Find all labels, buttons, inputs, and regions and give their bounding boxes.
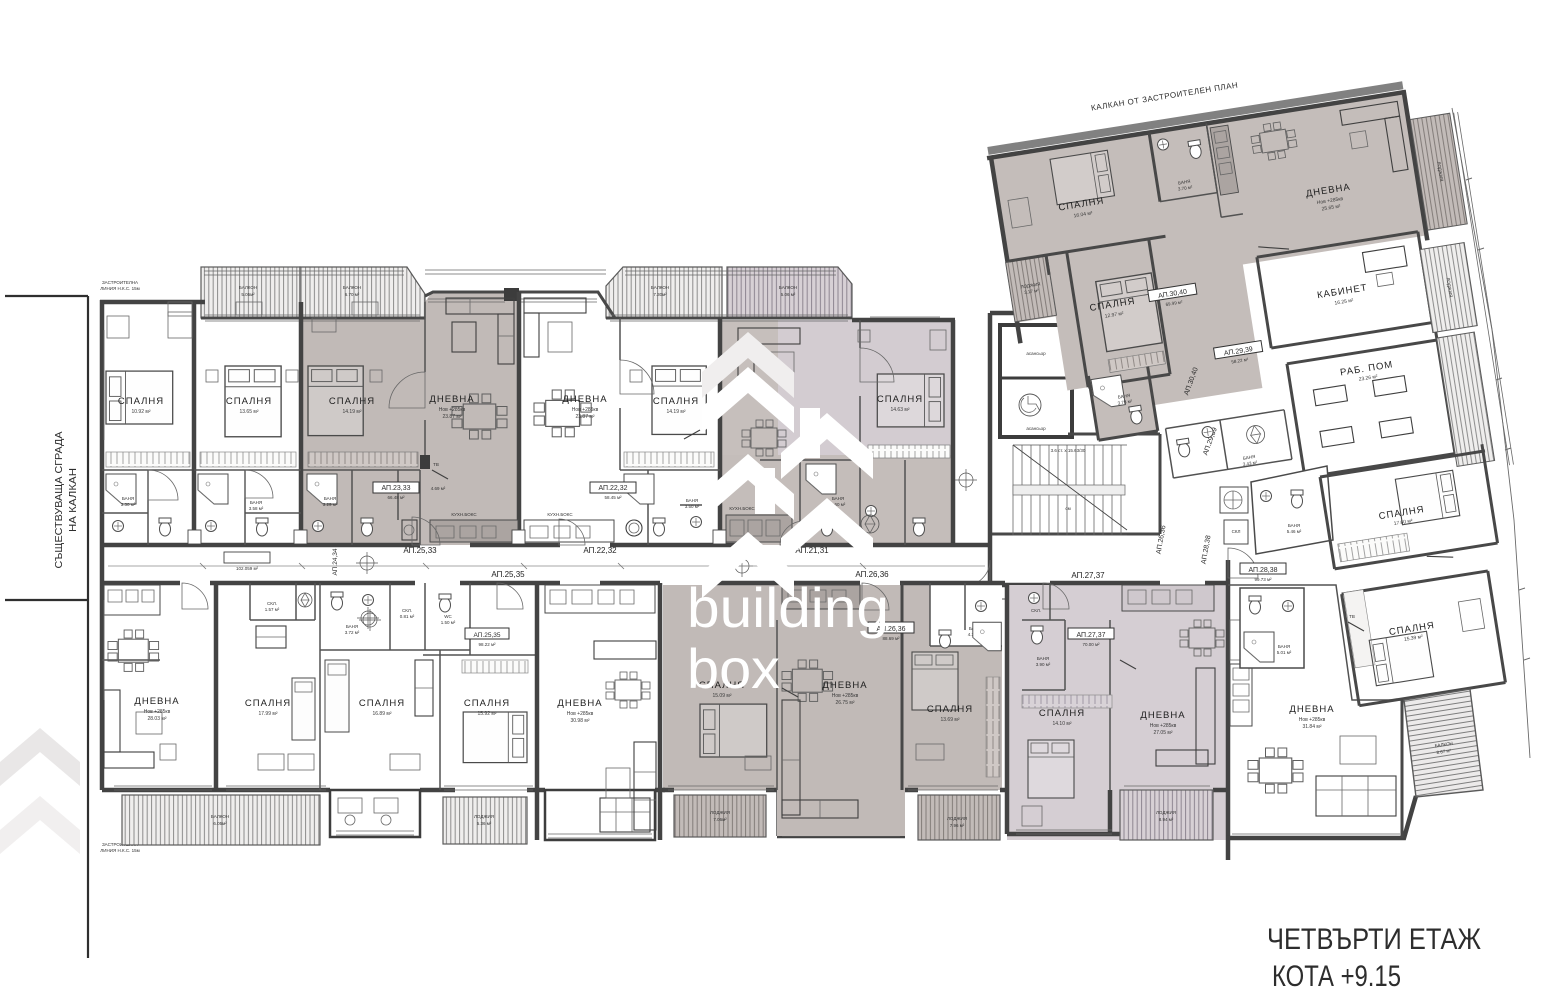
svg-text:СПАЛНЯ: СПАЛНЯ xyxy=(653,396,699,407)
svg-text:1.57 м²: 1.57 м² xyxy=(265,607,280,612)
svg-text:3.90 м²: 3.90 м² xyxy=(1036,662,1051,667)
svg-text:асансьор: асансьор xyxy=(1026,426,1046,431)
svg-text:7.96 м²: 7.96 м² xyxy=(950,823,965,828)
svg-text:Нов +285кв: Нов +285кв xyxy=(567,711,594,717)
svg-text:АП.22,32: АП.22,32 xyxy=(598,485,627,492)
svg-text:1.50 м²: 1.50 м² xyxy=(441,620,456,625)
svg-text:Нов +285кв: Нов +285кв xyxy=(144,709,171,715)
svg-text:АП.25,35: АП.25,35 xyxy=(491,570,525,579)
svg-text:58.45 м²: 58.45 м² xyxy=(604,495,622,500)
svg-text:БАНЯ: БАНЯ xyxy=(324,496,336,501)
svg-text:13.69 м²: 13.69 м² xyxy=(940,717,959,723)
svg-text:СПАЛНЯ: СПАЛНЯ xyxy=(464,698,510,709)
svg-text:БАНЯ: БАНЯ xyxy=(1278,644,1290,649)
svg-text:СЪЩЕСТВУВАЩА СГРАДА: СЪЩЕСТВУВАЩА СГРАДА xyxy=(53,432,65,569)
svg-text:СКЛ: СКЛ xyxy=(1232,529,1241,534)
svg-text:30.98 м²: 30.98 м² xyxy=(570,718,589,724)
svg-text:БАЛКОН: БАЛКОН xyxy=(343,285,361,290)
svg-text:6.70 м²: 6.70 м² xyxy=(345,292,360,297)
svg-text:ЛИНИЯ Н.К.С. 15м: ЛИНИЯ Н.К.С. 15м xyxy=(100,848,139,853)
svg-text:3.30 м²: 3.30 м² xyxy=(121,502,136,507)
svg-text:БАЛКОН: БАЛКОН xyxy=(239,285,257,290)
svg-text:ДНЕВНА: ДНЕВНА xyxy=(1140,710,1185,721)
svg-text:14.19 м²: 14.19 м² xyxy=(342,409,361,415)
svg-text:БАНЯ: БАНЯ xyxy=(686,498,698,503)
svg-text:ТВ: ТВ xyxy=(1349,614,1355,619)
svg-text:5.06 м²: 5.06 м² xyxy=(781,292,796,297)
svg-text:БАНЯ: БАНЯ xyxy=(832,496,844,501)
svg-text:99.73 м²: 99.73 м² xyxy=(1254,577,1272,582)
svg-text:СПАЛНЯ: СПАЛНЯ xyxy=(359,698,405,709)
svg-text:БАНЯ: БАНЯ xyxy=(346,624,358,629)
svg-text:3.29 м²: 3.29 м² xyxy=(323,502,338,507)
svg-text:3.6 ст. х 15.63/30: 3.6 ст. х 15.63/30 xyxy=(1051,448,1086,453)
svg-text:СПАЛНЯ: СПАЛНЯ xyxy=(1039,708,1085,719)
svg-text:3.72 м²: 3.72 м² xyxy=(345,630,360,635)
svg-text:АП.23,33: АП.23,33 xyxy=(381,485,410,492)
svg-text:АП.25,35: АП.25,35 xyxy=(473,632,500,639)
svg-text:102.059 м²: 102.059 м² xyxy=(236,566,259,571)
svg-text:building: building xyxy=(687,576,889,639)
svg-text:СПАЛНЯ: СПАЛНЯ xyxy=(877,394,923,405)
svg-text:5.05м²: 5.05м² xyxy=(241,292,255,297)
svg-text:box: box xyxy=(687,637,780,700)
svg-text:БАНЯ: БАНЯ xyxy=(250,500,262,505)
svg-text:0.81 м²: 0.81 м² xyxy=(400,614,415,619)
svg-text:БАЛКОН: БАЛКОН xyxy=(211,814,229,819)
svg-text:СПАЛНЯ: СПАЛНЯ xyxy=(118,396,164,407)
svg-text:70.00 м²: 70.00 м² xyxy=(1082,642,1100,647)
svg-text:ДНЕВНА: ДНЕВНА xyxy=(822,680,867,691)
svg-text:ТВ: ТВ xyxy=(433,462,439,467)
svg-text:СКЛ.: СКЛ. xyxy=(402,608,412,613)
svg-text:5.46 м²: 5.46 м² xyxy=(1287,529,1302,534)
svg-text:НА КАЛКАН: НА КАЛКАН xyxy=(67,468,79,532)
svg-text:4.69 м²: 4.69 м² xyxy=(431,486,446,491)
svg-text:10.92 м²: 10.92 м² xyxy=(131,409,150,415)
svg-text:АП.25,33: АП.25,33 xyxy=(403,546,437,555)
svg-text:см: см xyxy=(1065,506,1070,511)
svg-text:ДНЕВНА: ДНЕВНА xyxy=(557,698,602,709)
svg-text:АП.27,37: АП.27,37 xyxy=(1076,632,1105,639)
svg-text:АП.24,34: АП.24,34 xyxy=(332,548,339,575)
svg-text:СПАЛНЯ: СПАЛНЯ xyxy=(245,698,291,709)
svg-text:ДНЕВНА: ДНЕВНА xyxy=(429,394,474,405)
svg-text:Нов +285кв: Нов +285кв xyxy=(439,407,466,413)
svg-text:14.63 м²: 14.63 м² xyxy=(890,407,909,413)
svg-text:26.75 м²: 26.75 м² xyxy=(835,700,854,706)
svg-text:23.87 м²: 23.87 м² xyxy=(442,414,461,420)
svg-text:98.22 м²: 98.22 м² xyxy=(478,642,496,647)
svg-text:ЛОДЖИЯ: ЛОДЖИЯ xyxy=(1156,810,1176,815)
svg-text:17.99 м²: 17.99 м² xyxy=(258,711,277,717)
svg-text:АП.27,37: АП.27,37 xyxy=(1071,571,1105,580)
svg-text:ЛИНИЯ Н.К.С. 15м: ЛИНИЯ Н.К.С. 15м xyxy=(100,286,139,291)
svg-text:БАЛКОН: БАЛКОН xyxy=(651,285,669,290)
svg-text:16.89 м²: 16.89 м² xyxy=(372,711,391,717)
svg-text:СПАЛНЯ: СПАЛНЯ xyxy=(329,396,375,407)
svg-text:ДНЕВНА: ДНЕВНА xyxy=(134,696,179,707)
svg-text:КУХН.БОКС: КУХН.БОКС xyxy=(451,512,477,517)
svg-text:БАНЯ: БАНЯ xyxy=(122,496,134,501)
svg-text:ЛОДЖИЯ: ЛОДЖИЯ xyxy=(710,810,730,815)
svg-text:АП.21,31: АП.21,31 xyxy=(795,546,829,555)
svg-text:ЧЕТВЪРТИ ЕТАЖ: ЧЕТВЪРТИ ЕТАЖ xyxy=(1267,923,1481,956)
svg-text:13.65 м²: 13.65 м² xyxy=(239,409,258,415)
svg-text:ДНЕВНА: ДНЕВНА xyxy=(562,394,607,405)
svg-text:Нов +285кв: Нов +285кв xyxy=(832,693,859,699)
svg-text:5.36 м²: 5.36 м² xyxy=(477,821,492,826)
svg-text:СКЛ.: СКЛ. xyxy=(1031,608,1041,613)
svg-text:БАЛКОН: БАЛКОН xyxy=(779,285,797,290)
svg-text:БАНЯ: БАНЯ xyxy=(1037,656,1049,661)
svg-text:14.10 м²: 14.10 м² xyxy=(1052,721,1071,727)
svg-text:Нов +285кв: Нов +285кв xyxy=(572,407,599,413)
svg-text:АП.28,38: АП.28,38 xyxy=(1248,567,1277,574)
svg-text:ЗАСТРОИТЕЛНА: ЗАСТРОИТЕЛНА xyxy=(102,280,138,285)
svg-text:БАНЯ: БАНЯ xyxy=(1288,523,1300,528)
svg-text:5.01 м²: 5.01 м² xyxy=(1277,650,1292,655)
svg-text:3.50 м²: 3.50 м² xyxy=(685,504,700,509)
svg-text:28.03 м²: 28.03 м² xyxy=(147,716,166,722)
svg-text:27.05 м²: 27.05 м² xyxy=(1153,730,1172,736)
svg-text:8.94 м²: 8.94 м² xyxy=(1159,817,1174,822)
svg-text:асансьор: асансьор xyxy=(1026,351,1046,356)
svg-text:СПАЛНЯ: СПАЛНЯ xyxy=(226,396,272,407)
svg-text:23.87 м²: 23.87 м² xyxy=(575,414,594,420)
svg-text:Нов +285кв: Нов +285кв xyxy=(1299,717,1326,723)
svg-text:WC: WC xyxy=(444,614,452,619)
svg-text:6.05м²: 6.05м² xyxy=(213,821,227,826)
svg-text:АП.22,32: АП.22,32 xyxy=(583,546,617,555)
svg-text:КУХН.БОКС: КУХН.БОКС xyxy=(729,506,755,511)
svg-text:3.58 м²: 3.58 м² xyxy=(249,506,264,511)
svg-text:ЛОДЖИЯ: ЛОДЖИЯ xyxy=(474,814,494,819)
svg-text:КОТА +9.15: КОТА +9.15 xyxy=(1272,960,1401,993)
svg-text:СКЛ.: СКЛ. xyxy=(267,601,277,606)
svg-text:СПАЛНЯ: СПАЛНЯ xyxy=(927,704,973,715)
svg-text:ДНЕВНА: ДНЕВНА xyxy=(1289,704,1334,715)
svg-text:31.84 м²: 31.84 м² xyxy=(1302,724,1321,730)
svg-text:7.30м²: 7.30м² xyxy=(653,292,667,297)
svg-text:Нов +285кв: Нов +285кв xyxy=(1150,723,1177,729)
svg-text:14.19 м²: 14.19 м² xyxy=(666,409,685,415)
svg-text:КУХН.БОКС: КУХН.БОКС xyxy=(547,512,573,517)
svg-text:15.92 м²: 15.92 м² xyxy=(477,711,496,717)
svg-text:ЛОДЖИЯ: ЛОДЖИЯ xyxy=(947,816,967,821)
svg-text:66.48 м²: 66.48 м² xyxy=(387,495,405,500)
svg-text:7.06м²: 7.06м² xyxy=(713,817,727,822)
